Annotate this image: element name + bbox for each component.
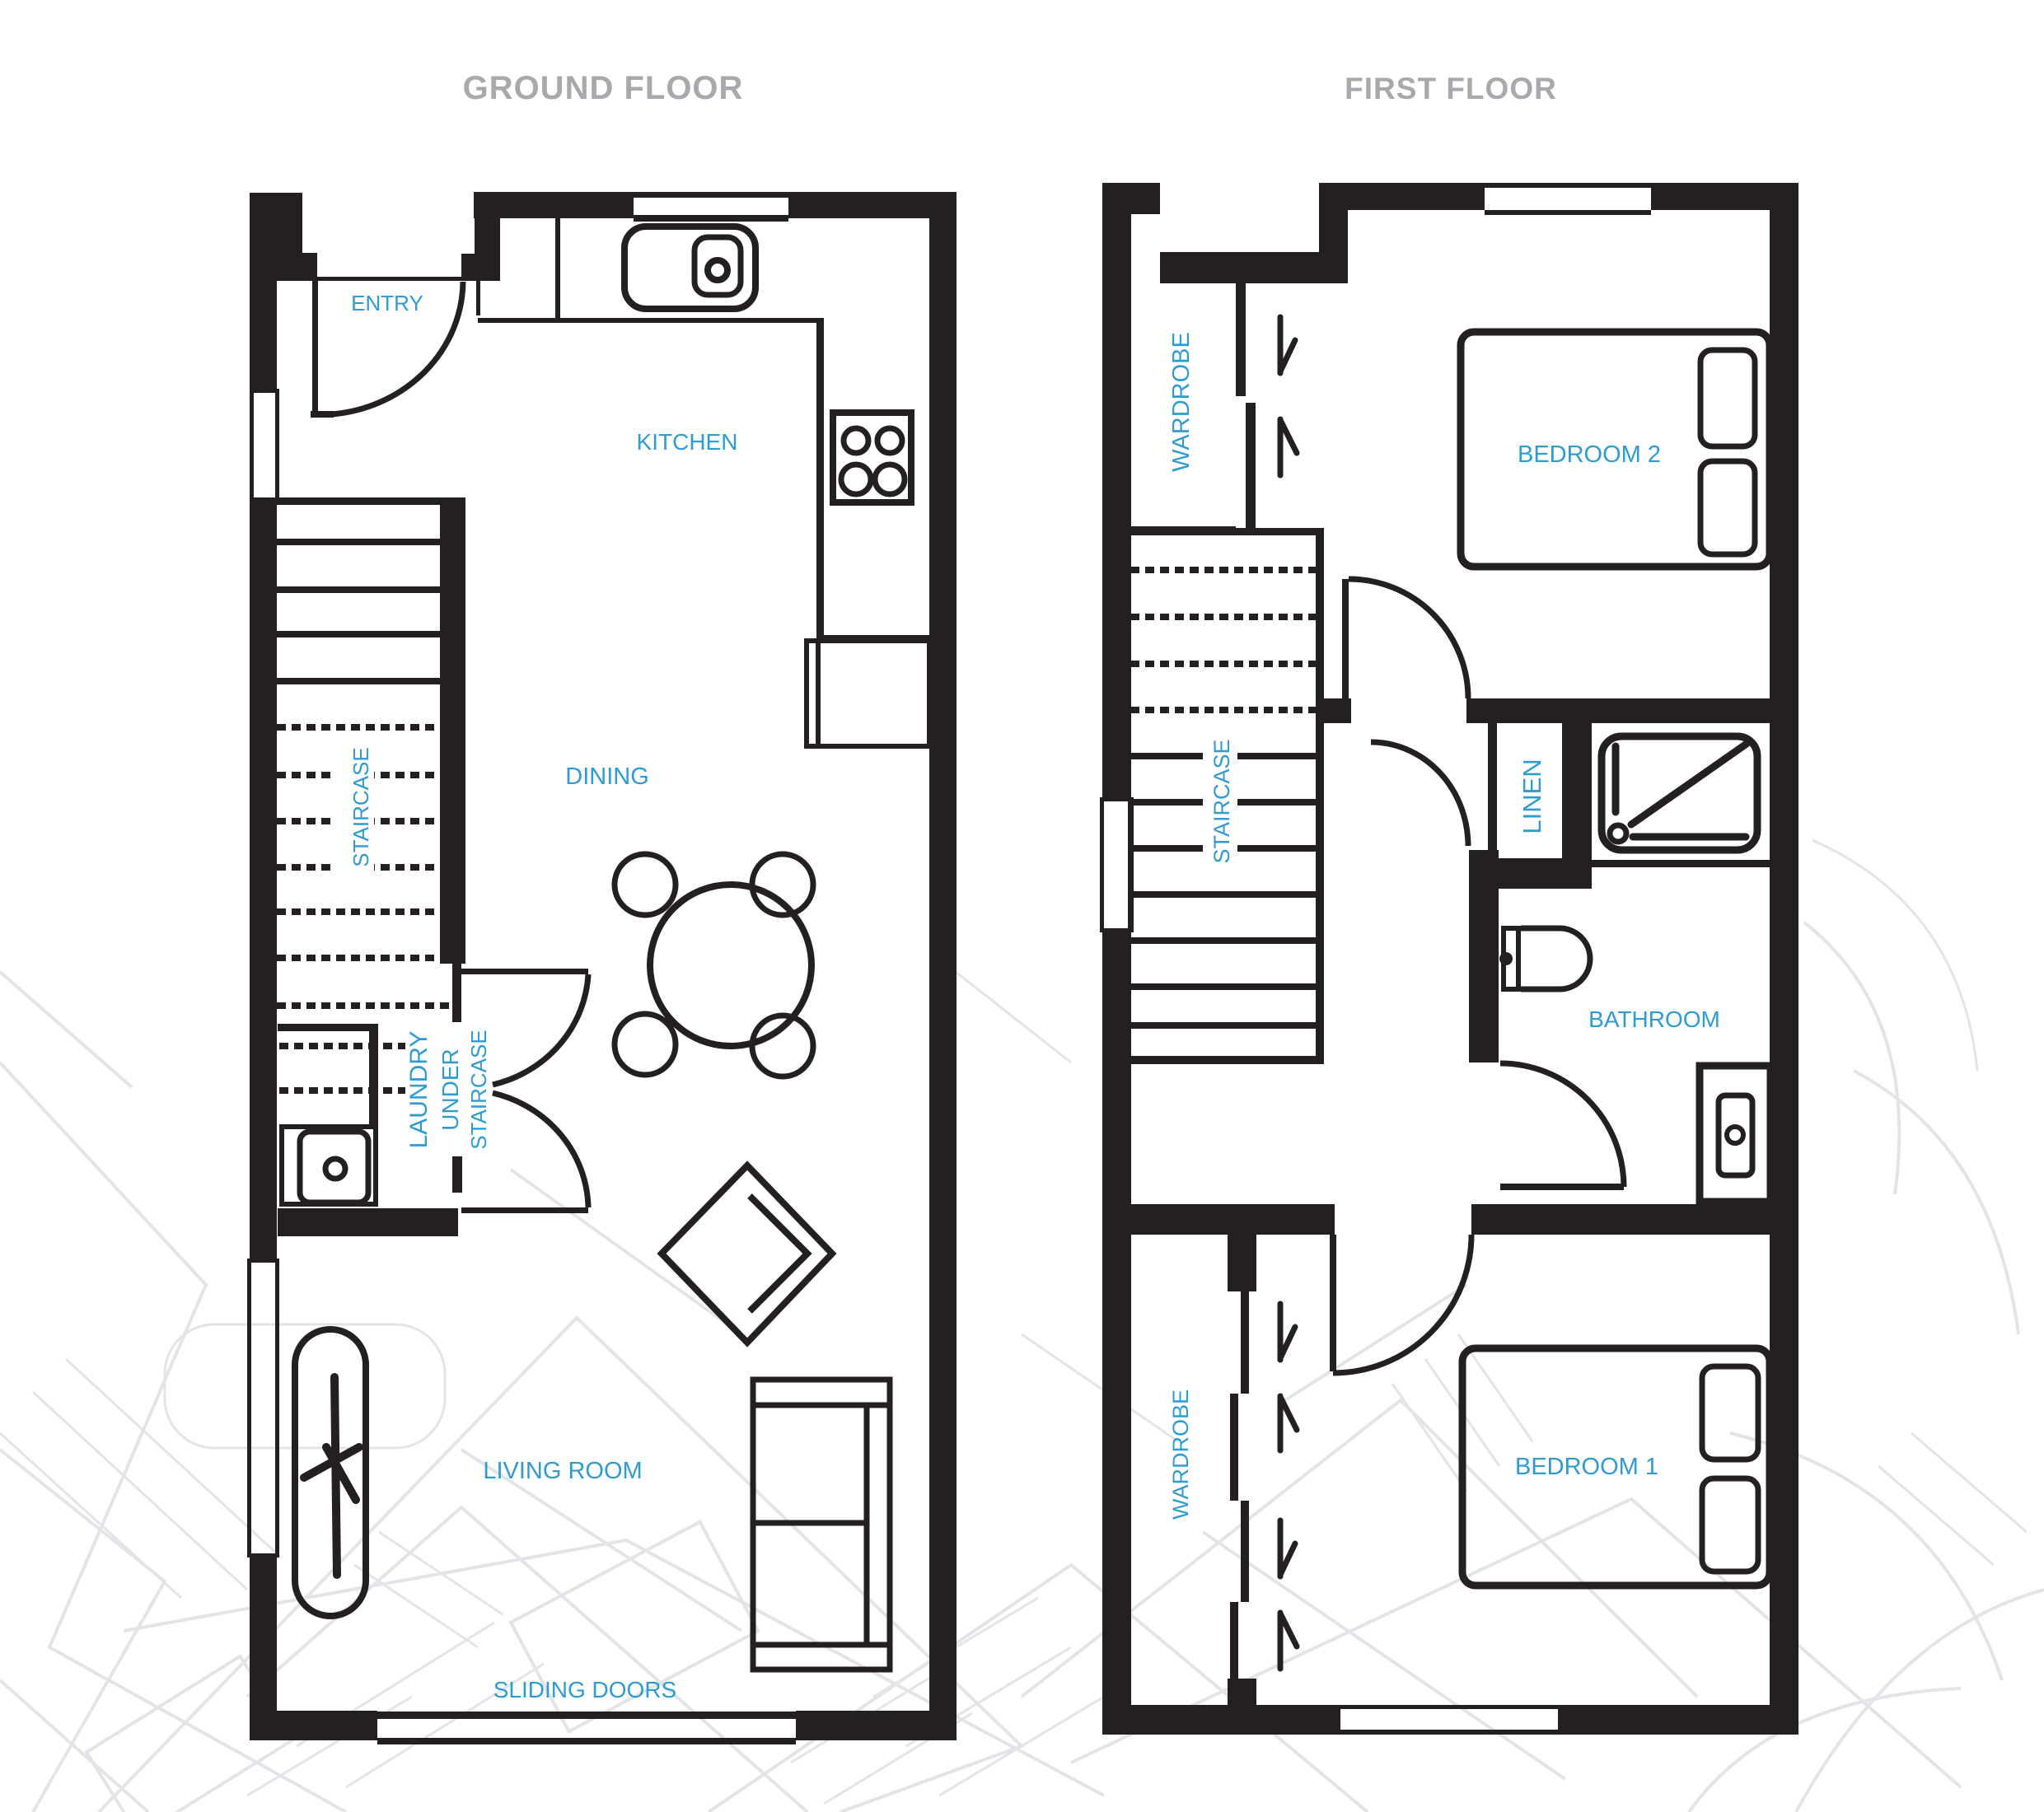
svg-text:LAUNDRY: LAUNDRY [405, 1031, 433, 1149]
svg-text:BATHROOM: BATHROOM [1588, 1006, 1720, 1032]
svg-text:LINEN: LINEN [1518, 759, 1546, 834]
svg-text:STAIRCASE: STAIRCASE [348, 747, 373, 866]
svg-text:FIRST FLOOR: FIRST FLOOR [1345, 72, 1557, 105]
svg-text:SLIDING DOORS: SLIDING DOORS [493, 1677, 676, 1702]
svg-text:GROUND FLOOR: GROUND FLOOR [463, 70, 744, 106]
svg-text:WARDROBE: WARDROBE [1168, 1389, 1193, 1520]
svg-text:STAIRCASE: STAIRCASE [1209, 739, 1234, 863]
svg-text:WARDROBE: WARDROBE [1168, 332, 1195, 472]
svg-text:BEDROOM 2: BEDROOM 2 [1518, 441, 1661, 468]
svg-text:LIVING ROOM: LIVING ROOM [483, 1458, 642, 1484]
svg-text:BEDROOM 1: BEDROOM 1 [1515, 1454, 1658, 1480]
svg-text:ENTRY: ENTRY [351, 291, 423, 315]
svg-text:KITCHEN: KITCHEN [637, 429, 738, 455]
svg-text:DINING: DINING [565, 764, 649, 790]
svg-text:STAIRCASE: STAIRCASE [466, 1030, 491, 1149]
svg-text:UNDER: UNDER [437, 1048, 463, 1131]
